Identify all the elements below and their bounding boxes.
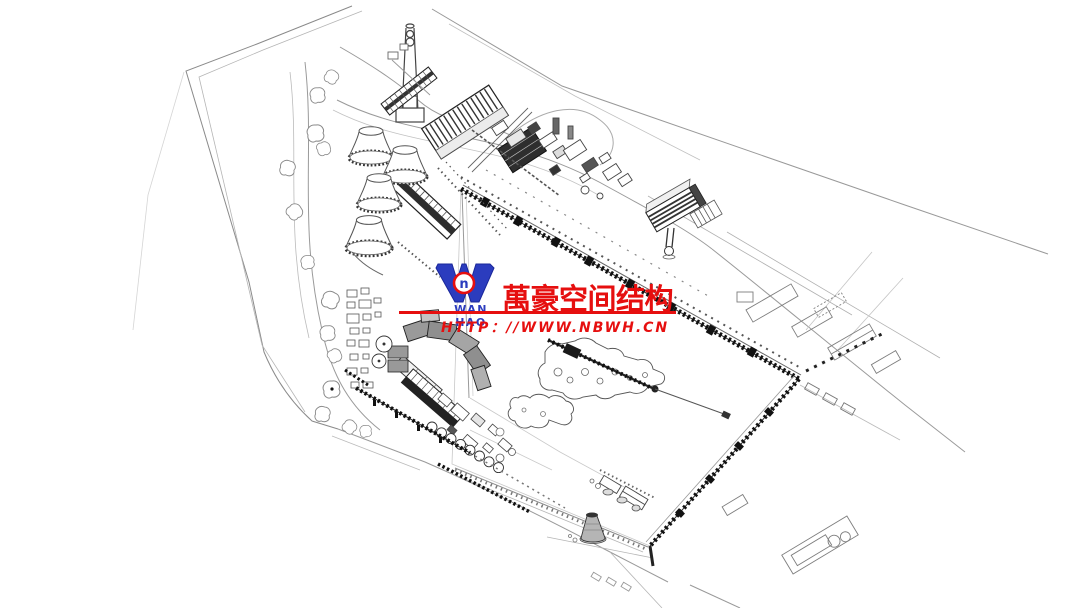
watermark-underline	[399, 311, 676, 314]
cooling-tower-icon	[346, 216, 392, 256]
boiler-house	[422, 85, 509, 159]
website-url: HTTP：//WWW.NBWH.CN	[441, 317, 669, 337]
screenshot-root: n WAN HAO 萬豪空间结构 HTTP：//WWW.NBWH.CN	[0, 0, 1080, 608]
office-building	[642, 178, 722, 259]
cooling-tower-icon	[349, 127, 393, 165]
wanhao-logo-icon: n	[432, 258, 507, 306]
logo-ring-letter: n	[459, 277, 468, 292]
